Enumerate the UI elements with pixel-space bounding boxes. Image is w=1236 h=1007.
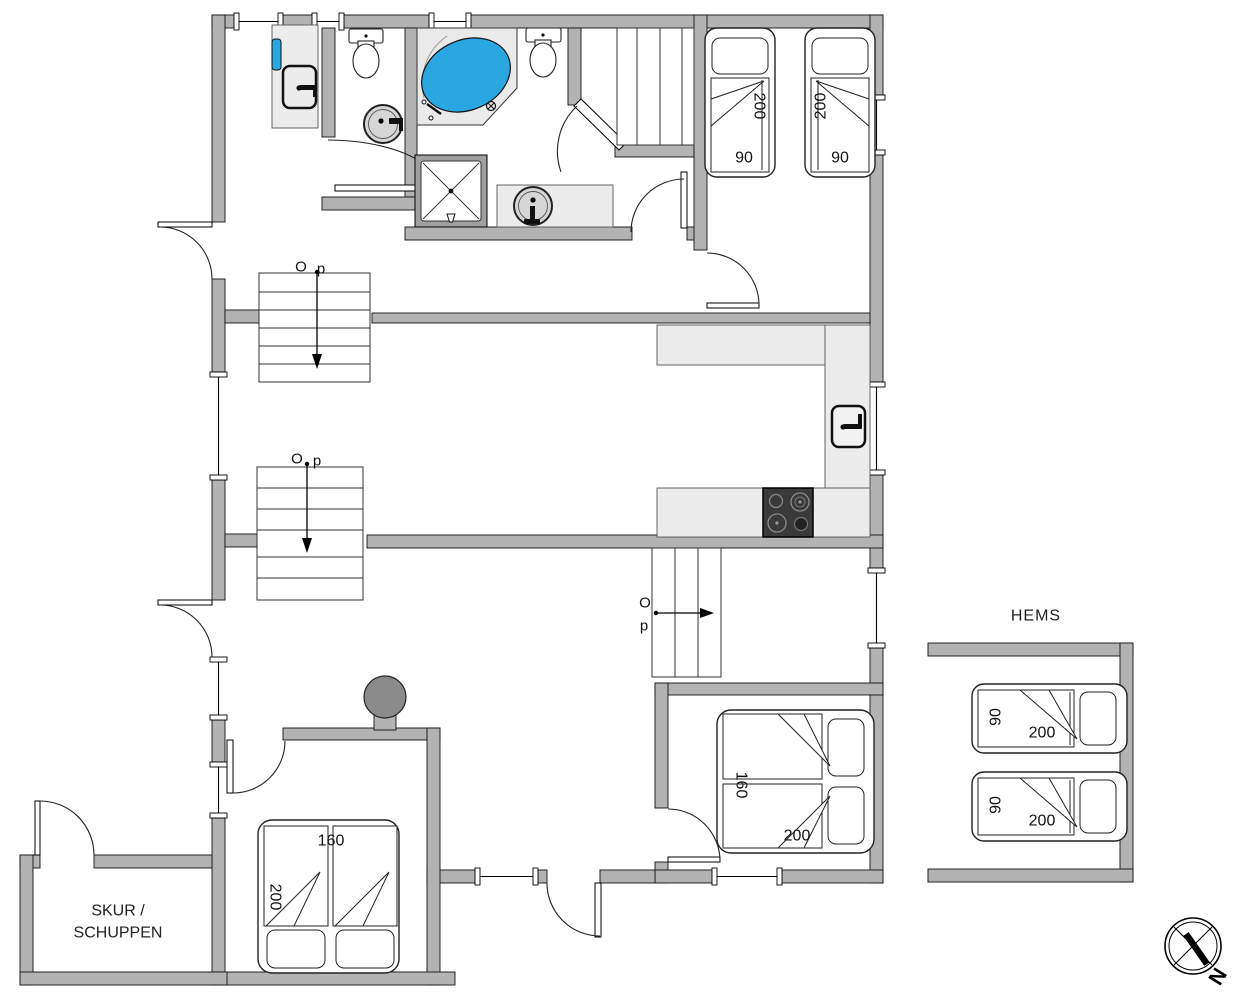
bed-double-right: 160 200 bbox=[717, 710, 874, 853]
bed-hems-2: 90 200 bbox=[972, 772, 1127, 841]
window-icon bbox=[210, 657, 227, 720]
door-left-top bbox=[158, 222, 212, 279]
bed-length-label: 200 bbox=[751, 93, 768, 120]
door-bottom-right-bedroom bbox=[668, 809, 720, 862]
hems-label: HEMS bbox=[1011, 608, 1061, 625]
bathroom-2 bbox=[410, 24, 613, 227]
door-shed bbox=[35, 801, 94, 855]
window-icon bbox=[868, 382, 885, 475]
washbasin-icon bbox=[364, 105, 403, 143]
kitchen-counter-top bbox=[657, 325, 827, 365]
pillow bbox=[1080, 780, 1116, 833]
shed-label-line1: SKUR / bbox=[91, 903, 145, 920]
floorplan-page: O p O p O p bbox=[0, 0, 1236, 1007]
bed-width-label: 90 bbox=[988, 708, 1005, 726]
compass-north-label: N bbox=[1203, 963, 1231, 988]
walls bbox=[20, 15, 1133, 985]
door-angled-hall bbox=[557, 99, 626, 172]
door-bottom-left-bedroom bbox=[227, 740, 285, 793]
bed-length-label: 200 bbox=[267, 884, 284, 911]
window-icon bbox=[868, 568, 885, 648]
stair-label-p: p bbox=[313, 453, 321, 470]
bed-width-label: 160 bbox=[318, 833, 345, 850]
stair-label-o: O bbox=[639, 595, 651, 612]
pillow bbox=[828, 719, 864, 776]
stair-label-o: O bbox=[291, 451, 303, 468]
pillow bbox=[336, 930, 394, 968]
bed-length-label: 200 bbox=[784, 828, 811, 845]
stair-label-p: p bbox=[640, 618, 648, 635]
door-top-bedroom bbox=[707, 253, 759, 308]
bed-length-label: 200 bbox=[1029, 725, 1056, 742]
stove-icon bbox=[763, 488, 813, 537]
bed-width-label: 90 bbox=[988, 796, 1005, 814]
pillow bbox=[267, 930, 325, 968]
bathroom-1 bbox=[349, 29, 403, 143]
bed-width-label: 160 bbox=[733, 772, 750, 799]
staircase-top bbox=[617, 28, 694, 145]
floorplan-drawing: O p O p O p bbox=[0, 0, 1236, 1007]
bed-hems-1: 90 200 bbox=[972, 684, 1127, 753]
vanity-basin-icon bbox=[497, 185, 613, 227]
bed-length-label: 200 bbox=[1029, 813, 1056, 830]
door-bottom-exterior bbox=[547, 883, 601, 937]
toilet-icon bbox=[526, 28, 561, 77]
door-left-mid bbox=[158, 600, 212, 657]
pillow bbox=[812, 38, 868, 74]
bed-single-2: 200 90 bbox=[805, 28, 875, 177]
shower-icon bbox=[415, 155, 487, 227]
utility-room bbox=[272, 25, 318, 128]
door-bathroom-2 bbox=[631, 172, 687, 232]
doors bbox=[35, 99, 759, 937]
toilet-icon bbox=[349, 29, 383, 78]
window-icon bbox=[210, 372, 227, 480]
pillow bbox=[828, 787, 864, 844]
window-icon bbox=[475, 868, 538, 885]
shed-label-line2: SCHUPPEN bbox=[74, 925, 163, 942]
stair-label-p: p bbox=[317, 261, 325, 278]
staircase-bottom: O p bbox=[639, 548, 721, 677]
kitchen bbox=[657, 325, 870, 537]
pillow bbox=[712, 38, 768, 74]
bed-single-1: 200 90 bbox=[705, 28, 775, 177]
window-icon bbox=[712, 868, 782, 885]
staircase-lower: O p bbox=[257, 451, 363, 601]
bed-double-left: 160 200 bbox=[258, 820, 399, 973]
staircase-upper: O p bbox=[259, 259, 370, 383]
kitchen-sink-icon bbox=[832, 406, 865, 447]
window-icon bbox=[429, 13, 471, 30]
window-icon bbox=[210, 762, 227, 818]
bed-length-label: 200 bbox=[813, 93, 830, 120]
bed-width-label: 90 bbox=[831, 150, 849, 167]
fireplace-icon bbox=[364, 676, 406, 718]
bed-width-label: 90 bbox=[735, 150, 753, 167]
compass-needle-icon bbox=[1186, 934, 1207, 964]
stair-label-o: O bbox=[295, 259, 307, 276]
compass-rose: N bbox=[1165, 918, 1231, 989]
pillow bbox=[1080, 692, 1116, 745]
corner-bathtub-icon bbox=[410, 24, 523, 125]
utility-tap-icon bbox=[272, 39, 281, 70]
